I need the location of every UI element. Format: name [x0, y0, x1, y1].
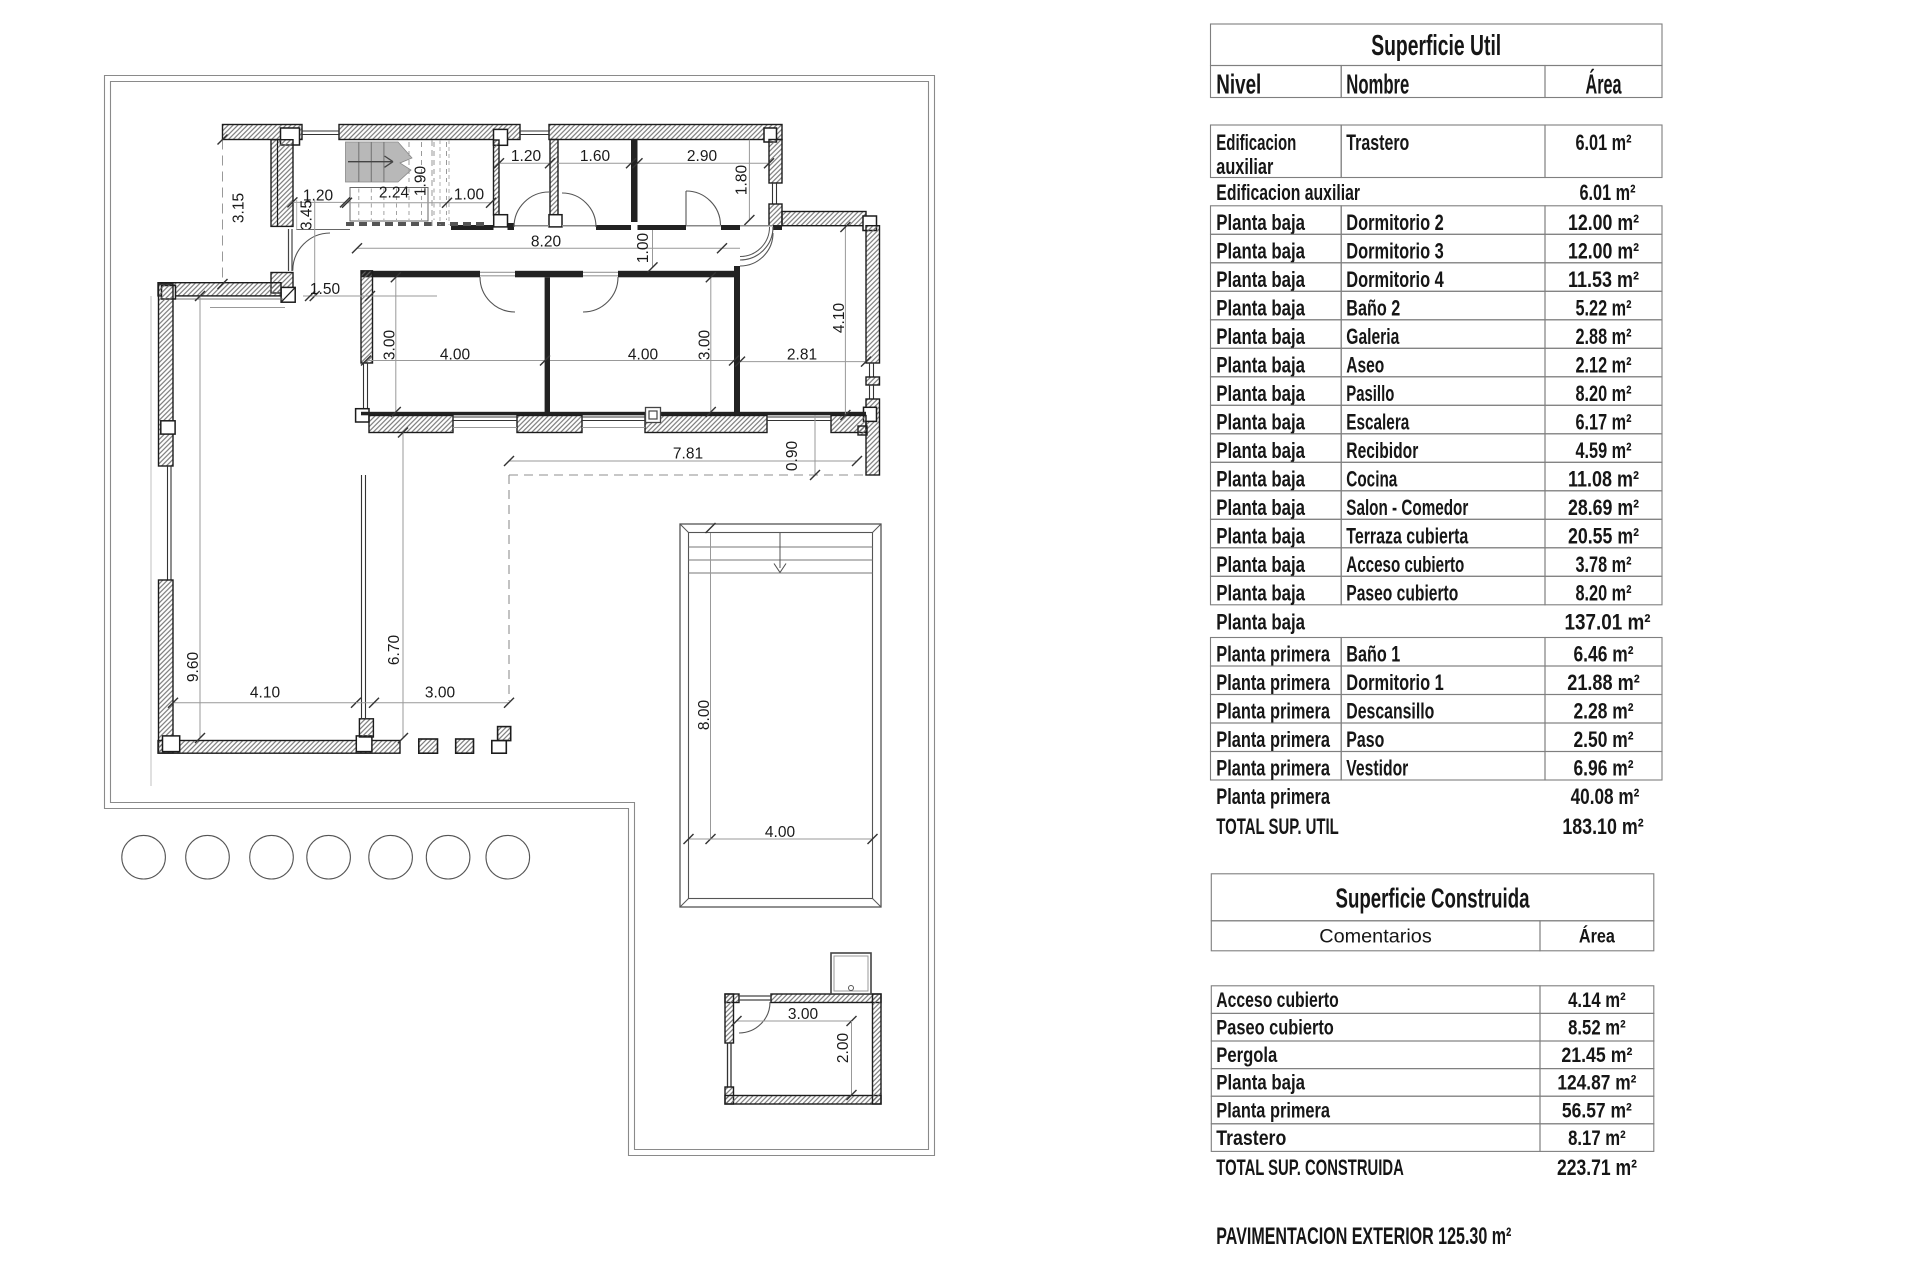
svg-text:Planta primera: Planta primera — [1216, 727, 1330, 752]
svg-text:9.60: 9.60 — [185, 652, 202, 683]
svg-text:Planta primera: Planta primera — [1216, 699, 1330, 724]
svg-text:4.59 m²: 4.59 m² — [1576, 438, 1632, 463]
svg-text:1.90: 1.90 — [413, 166, 430, 197]
svg-text:21.45 m²: 21.45 m² — [1561, 1044, 1632, 1067]
svg-text:Planta baja: Planta baja — [1216, 410, 1305, 435]
svg-text:Trastero: Trastero — [1346, 130, 1409, 155]
svg-text:Descansillo: Descansillo — [1346, 699, 1434, 724]
svg-text:4.00: 4.00 — [440, 347, 471, 364]
svg-text:40.08 m²: 40.08 m² — [1571, 784, 1640, 809]
svg-text:4.14 m²: 4.14 m² — [1568, 989, 1626, 1012]
svg-text:Dormitorio 4: Dormitorio 4 — [1346, 267, 1444, 292]
svg-text:Superficie Util: Superficie Util — [1371, 30, 1501, 62]
svg-text:4.00: 4.00 — [628, 347, 659, 364]
svg-text:0.90: 0.90 — [784, 441, 801, 472]
svg-text:Planta baja: Planta baja — [1216, 239, 1305, 264]
svg-text:TOTAL SUP. UTIL: TOTAL SUP. UTIL — [1216, 814, 1339, 839]
svg-text:1.20: 1.20 — [511, 148, 542, 165]
svg-text:6.46 m²: 6.46 m² — [1574, 642, 1634, 667]
svg-text:2.90: 2.90 — [687, 148, 718, 165]
svg-text:Planta primera: Planta primera — [1216, 784, 1330, 809]
svg-text:Planta baja: Planta baja — [1216, 210, 1305, 235]
svg-text:3.00: 3.00 — [697, 330, 714, 361]
svg-text:Paseo cubierto: Paseo cubierto — [1216, 1017, 1334, 1040]
svg-text:1.60: 1.60 — [580, 148, 611, 165]
svg-text:Planta baja: Planta baja — [1216, 524, 1305, 549]
svg-text:Nombre: Nombre — [1346, 69, 1409, 100]
svg-text:6.70: 6.70 — [386, 635, 403, 666]
svg-text:Aseo: Aseo — [1346, 353, 1384, 378]
svg-text:2.88 m²: 2.88 m² — [1576, 324, 1632, 349]
svg-text:Dormitorio 3: Dormitorio 3 — [1346, 239, 1444, 264]
svg-text:2.00: 2.00 — [835, 1033, 852, 1064]
svg-text:11.08 m²: 11.08 m² — [1568, 467, 1639, 492]
svg-text:3.00: 3.00 — [382, 330, 399, 361]
svg-text:Acceso cubierto: Acceso cubierto — [1346, 552, 1464, 577]
svg-text:Planta baja: Planta baja — [1216, 438, 1305, 463]
svg-text:1.80: 1.80 — [733, 165, 750, 196]
svg-text:Área: Área — [1579, 926, 1615, 948]
svg-text:Pergola: Pergola — [1216, 1044, 1277, 1067]
svg-text:183.10 m²: 183.10 m² — [1562, 814, 1643, 839]
svg-text:Terraza cubierta: Terraza cubierta — [1346, 524, 1469, 549]
svg-text:1.00: 1.00 — [635, 233, 652, 264]
svg-text:auxiliar: auxiliar — [1216, 154, 1273, 179]
svg-text:223.71 m²: 223.71 m² — [1557, 1155, 1637, 1180]
svg-text:1.50: 1.50 — [310, 281, 341, 298]
svg-text:21.88 m²: 21.88 m² — [1567, 670, 1640, 695]
svg-text:Baño 2: Baño 2 — [1346, 296, 1400, 321]
svg-text:Pasillo: Pasillo — [1346, 381, 1394, 406]
svg-text:8.52 m²: 8.52 m² — [1568, 1017, 1626, 1040]
svg-text:Paseo cubierto: Paseo cubierto — [1346, 581, 1458, 606]
svg-text:Nivel: Nivel — [1216, 69, 1261, 100]
svg-text:2.50 m²: 2.50 m² — [1574, 727, 1634, 752]
svg-text:11.53 m²: 11.53 m² — [1568, 267, 1639, 292]
svg-text:8.00: 8.00 — [696, 700, 713, 731]
svg-text:Planta baja: Planta baja — [1216, 467, 1305, 492]
svg-text:Edificacion auxiliar: Edificacion auxiliar — [1216, 180, 1360, 205]
svg-text:8.20 m²: 8.20 m² — [1576, 581, 1632, 606]
svg-text:3.45: 3.45 — [299, 200, 316, 230]
svg-text:3.00: 3.00 — [425, 685, 456, 702]
svg-text:Cocina: Cocina — [1346, 467, 1398, 492]
svg-text:Vestidor: Vestidor — [1346, 756, 1408, 781]
svg-text:Planta primera: Planta primera — [1216, 642, 1330, 667]
svg-text:Comentarios: Comentarios — [1319, 927, 1432, 948]
svg-text:3.15: 3.15 — [231, 193, 248, 223]
svg-text:56.57 m²: 56.57 m² — [1562, 1099, 1632, 1122]
svg-text:Trastero: Trastero — [1216, 1127, 1286, 1150]
svg-text:Planta baja: Planta baja — [1216, 552, 1305, 577]
svg-text:Dormitorio 2: Dormitorio 2 — [1346, 210, 1444, 235]
svg-text:124.87 m²: 124.87 m² — [1557, 1072, 1636, 1095]
svg-text:4.10: 4.10 — [831, 303, 848, 334]
svg-text:PAVIMENTACION EXTERIOR 125.30: PAVIMENTACION EXTERIOR 125.30 m² — [1216, 1223, 1511, 1250]
svg-text:8.20: 8.20 — [531, 234, 562, 251]
svg-text:2.28 m²: 2.28 m² — [1574, 699, 1634, 724]
svg-text:4.00: 4.00 — [765, 824, 796, 841]
svg-text:Dormitorio 1: Dormitorio 1 — [1346, 670, 1444, 695]
svg-text:6.01 m²: 6.01 m² — [1580, 180, 1636, 205]
svg-text:Planta baja: Planta baja — [1216, 324, 1305, 349]
svg-text:7.81: 7.81 — [673, 446, 703, 463]
svg-text:6.01 m²: 6.01 m² — [1576, 130, 1632, 155]
svg-text:Planta baja: Planta baja — [1216, 1072, 1305, 1095]
svg-text:Planta primera: Planta primera — [1216, 1099, 1330, 1122]
svg-text:4.10: 4.10 — [250, 685, 281, 702]
svg-text:Planta primera: Planta primera — [1216, 670, 1330, 695]
svg-text:28.69 m²: 28.69 m² — [1568, 495, 1639, 520]
svg-text:Área: Área — [1586, 69, 1622, 100]
svg-text:Planta baja: Planta baja — [1216, 610, 1305, 635]
svg-text:12.00 m²: 12.00 m² — [1568, 239, 1639, 264]
svg-text:Planta baja: Planta baja — [1216, 296, 1305, 321]
svg-text:Baño 1: Baño 1 — [1346, 642, 1400, 667]
svg-text:3.00: 3.00 — [788, 1006, 819, 1023]
svg-text:Galeria: Galeria — [1346, 324, 1400, 349]
svg-text:2.12 m²: 2.12 m² — [1576, 353, 1632, 378]
svg-text:2.81: 2.81 — [787, 347, 817, 364]
svg-text:Planta baja: Planta baja — [1216, 581, 1305, 606]
svg-text:Planta baja: Planta baja — [1216, 381, 1305, 406]
svg-text:1.00: 1.00 — [454, 187, 485, 204]
svg-text:6.17 m²: 6.17 m² — [1576, 410, 1632, 435]
svg-text:Planta baja: Planta baja — [1216, 353, 1305, 378]
svg-text:Salon - Comedor: Salon - Comedor — [1346, 495, 1468, 520]
svg-text:8.20 m²: 8.20 m² — [1576, 381, 1632, 406]
svg-text:Edificacion: Edificacion — [1216, 130, 1296, 155]
svg-text:2.24: 2.24 — [379, 185, 410, 202]
svg-text:8.17 m²: 8.17 m² — [1568, 1127, 1626, 1150]
svg-text:6.96 m²: 6.96 m² — [1574, 756, 1634, 781]
svg-text:Planta baja: Planta baja — [1216, 495, 1305, 520]
svg-text:Escalera: Escalera — [1346, 410, 1410, 435]
svg-text:Recibidor: Recibidor — [1346, 438, 1418, 463]
svg-text:Planta primera: Planta primera — [1216, 756, 1330, 781]
svg-text:Planta baja: Planta baja — [1216, 267, 1305, 292]
svg-text:137.01 m²: 137.01 m² — [1565, 610, 1651, 635]
svg-text:Acceso cubierto: Acceso cubierto — [1216, 989, 1339, 1012]
svg-text:12.00 m²: 12.00 m² — [1568, 210, 1639, 235]
svg-text:Superficie Construida: Superficie Construida — [1336, 883, 1530, 914]
svg-text:Paso: Paso — [1346, 727, 1384, 752]
svg-text:20.55 m²: 20.55 m² — [1568, 524, 1639, 549]
svg-text:TOTAL SUP. CONSTRUIDA: TOTAL SUP. CONSTRUIDA — [1216, 1155, 1404, 1180]
svg-text:3.78 m²: 3.78 m² — [1576, 552, 1632, 577]
svg-text:5.22 m²: 5.22 m² — [1576, 296, 1632, 321]
